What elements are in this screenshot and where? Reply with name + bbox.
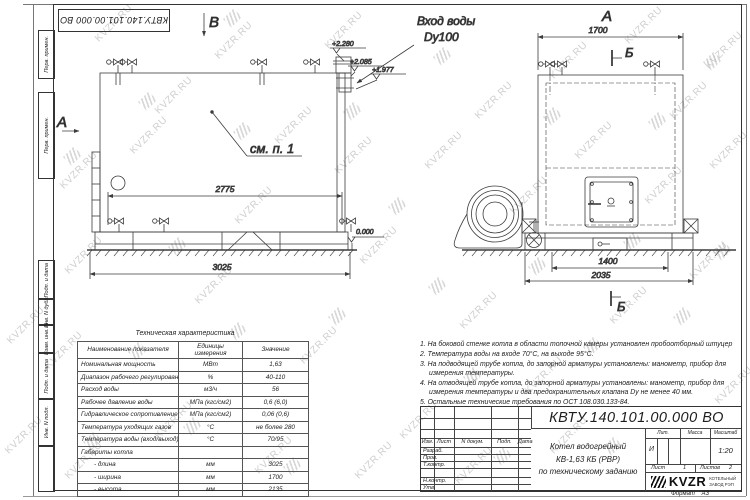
spec-table-cell: Расход воды [78, 384, 179, 397]
kvzr-logo-text: KVZR [669, 474, 706, 489]
water-inlet-label-2: Dy100 [424, 30, 459, 44]
dim-3025: 3025 [213, 262, 232, 272]
tb-line [421, 484, 531, 485]
view-label-b-top: В [209, 14, 219, 31]
spec-col-name: Наименование показателя [78, 342, 179, 359]
section-mark-bottom: Б [617, 299, 626, 314]
view-label-a-front: А [601, 8, 612, 25]
elev-0000: 0.000 [356, 229, 374, 236]
tb-col-data: Дата [518, 439, 531, 445]
spec-table-body: Номинальная мощностьМВт1,63Диапазон рабо… [78, 359, 309, 497]
fan-blower [454, 186, 541, 248]
spec-table-cell: Температура воды (вход/выход) [78, 434, 179, 447]
spec-table-title: Техническая характеристика [77, 330, 293, 337]
section-mark-top: Б [625, 45, 634, 60]
kvzr-logo: KVZR КОТЕЛЬНЫЙ ЗАВОД РЭП [646, 472, 741, 491]
tb-role-prov: Пров. [423, 455, 438, 461]
tb-line [518, 407, 519, 491]
technical-note: 4. На отводящей трубе котла, до запорной… [420, 380, 737, 398]
tb-role-tkontr: Т.контр. [423, 462, 445, 468]
spec-table-cell [243, 446, 309, 459]
spec-table-cell: Диапазон рабочего регулирования [78, 371, 179, 384]
tb-role-nkontr: Н.контр. [423, 478, 446, 484]
spec-table-cell: 1,63 [243, 359, 309, 372]
spec-table-row: Температура уходящих газов°Сне более 280 [78, 421, 309, 434]
spec-table-cell: Температура уходящих газов [78, 421, 179, 434]
spec-table-cell: - ширина [78, 471, 179, 484]
spec-table-cell: 0,6 (6,0) [243, 396, 309, 409]
spec-table-cell: Габариты котла [78, 446, 179, 459]
spec-table-cell: 70/95 [243, 434, 309, 447]
tb-sheets-value: 2 [729, 465, 732, 471]
spec-table-cell: МВт [179, 359, 243, 372]
elev-2280: +2.280 [332, 41, 354, 48]
spec-table-row: - высотамм2135 [78, 484, 309, 497]
spec-table-cell: 3025 [243, 459, 309, 472]
tb-line [695, 464, 696, 472]
tb-role-utv: Утв. [423, 485, 436, 491]
tb-line [421, 468, 531, 469]
spec-table-cell: мм [179, 484, 243, 497]
tb-line [668, 438, 669, 464]
tb-col-doc: N докум. [454, 439, 491, 445]
spec-table-row: Гидравлическое сопротивление котлаМПа (к… [78, 409, 309, 422]
tb-product-line2: КВ-1,63 КБ (РВР) [556, 454, 620, 466]
format-note: Формат А3 [620, 491, 750, 497]
spec-table-cell: Рабочее давление воды [78, 396, 179, 409]
tb-doc-number: КВТУ.140.101.00.000 ВО [531, 407, 741, 429]
tb-col-list: Лист [434, 439, 454, 445]
tb-line [491, 407, 492, 491]
spec-table-cell: 1700 [243, 471, 309, 484]
spec-table-cell: 0,06 (0,6) [243, 409, 309, 422]
technical-note: 3. На подводящей трубе котла, до запорно… [420, 361, 737, 379]
spec-table-row: - длинамм3025 [78, 459, 309, 472]
tb-line [421, 418, 531, 419]
spec-col-units: Единицы измерения [179, 342, 243, 359]
spec-table-cell: - длина [78, 459, 179, 472]
spec-table-cell: °С [179, 421, 243, 434]
see-note-label: см. п. 1 [250, 141, 294, 156]
tb-scale-value: 1:20 [710, 446, 741, 455]
water-inlet-label-1: Вход воды [417, 14, 475, 28]
spec-table-cell: МПа (кгс/см2) [179, 396, 243, 409]
access-door [585, 177, 638, 227]
kvzr-logo-subtext: КОТЕЛЬНЫЙ ЗАВОД РЭП [709, 476, 736, 486]
spec-table-row: Диапазон рабочего регулирования%40-110 [78, 371, 309, 384]
tb-line [646, 438, 741, 439]
technical-notes: 1. На боковой стенке котла в области топ… [420, 341, 737, 409]
spec-table-cell: - высота [78, 484, 179, 497]
tb-lit-value: И [646, 446, 657, 453]
elev-2085: +2.085 [350, 59, 372, 66]
drawing-sheet: KVZR.RUKVZR.RUKVZR.RUKVZR.RUKVZR.RUKVZR.… [0, 0, 750, 500]
spec-table-row: Рабочее давление водыМПа (кгс/см2)0,6 (6… [78, 396, 309, 409]
tb-product: Котел водогрейный КВ-1,63 КБ (РВР) по те… [531, 429, 646, 491]
tb-lit-label: Лит. [646, 430, 680, 436]
spec-table-cell: 40-110 [243, 371, 309, 384]
spec-table-row: Номинальная мощностьМВт1,63 [78, 359, 309, 372]
ground-hatch-left [87, 250, 353, 256]
tb-product-line3: по техническому заданию [539, 466, 638, 478]
tb-role-razrab: Разраб. [423, 448, 443, 454]
spec-table-cell: Номинальная мощность [78, 359, 179, 372]
tb-sheet-label: Лист [651, 465, 665, 471]
spec-table-cell: мм [179, 459, 243, 472]
kvzr-logo-icon [651, 476, 666, 488]
spec-table-cell: мм [179, 471, 243, 484]
spec-table-cell: 56 [243, 384, 309, 397]
spec-table: Наименование показателя Единицы измерени… [77, 341, 309, 497]
tb-col-podp: Подп. [491, 439, 518, 445]
ground-hatch-right [463, 250, 729, 256]
tb-sheets-label: Листов [700, 465, 720, 471]
technical-note: 1. На боковой стенке котла в области топ… [420, 341, 737, 350]
tb-sheet-value: 1 [683, 465, 686, 471]
tb-line [657, 438, 658, 464]
spec-table-cell: м3/ч [179, 384, 243, 397]
spec-table-cell: % [179, 371, 243, 384]
dim-1400: 1400 [599, 256, 618, 266]
tb-product-line1: Котел водогрейный [550, 441, 626, 453]
spec-table-cell [179, 446, 243, 459]
tb-mass-label: Масса [680, 430, 710, 436]
spec-table-cell: Гидравлическое сопротивление котла [78, 409, 179, 422]
spec-table-cell: не более 280 [243, 421, 309, 434]
dim-1700: 1700 [589, 25, 608, 35]
tb-scale-label: Масштаб [710, 430, 741, 436]
tb-line [454, 407, 455, 491]
spec-col-value: Значение [243, 342, 309, 359]
spec-table-cell: МПа (кгс/см2) [179, 409, 243, 422]
dim-2775: 2775 [215, 184, 235, 194]
spec-table-row: Габариты котла [78, 446, 309, 459]
title-block: Изм. Лист N докум. Подп. Дата Разраб. Пр… [420, 406, 742, 492]
side-view: 2775 3025 см. п. 1 +2.280 +2.085 +1.977 … [56, 13, 475, 279]
spec-table-cell: °С [179, 434, 243, 447]
spec-table-row: Расход водым3/ч56 [78, 384, 309, 397]
tb-col-izm: Изм. [421, 439, 434, 445]
view-label-a-side: А [56, 114, 67, 131]
spec-table-cell: 2135 [243, 484, 309, 497]
front-view: А 1700 Б [454, 8, 736, 314]
spec-table-row: Температура воды (вход/выход)°С70/95 [78, 434, 309, 447]
tb-line [421, 429, 531, 430]
spec-table-row: - ширинамм1700 [78, 471, 309, 484]
technical-note: 2. Температура воды на входе 70°С, на вы… [420, 351, 737, 360]
dim-2035: 2035 [591, 270, 611, 280]
